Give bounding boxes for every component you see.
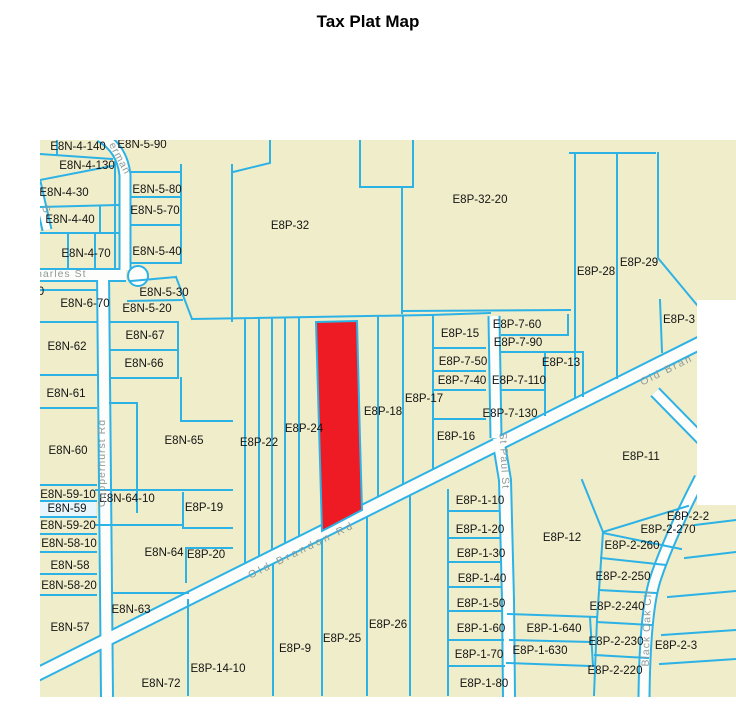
parcel-label: E8N-58 [51, 560, 90, 572]
plat-map: E8N-4-140E8N-5-90E8N-4-130E8N-4-30E8N-5-… [0, 0, 736, 726]
parcel-label: E8N-5-80 [132, 184, 181, 196]
parcel-label: E8P-7-50 [439, 356, 488, 368]
tax-plat-map-page: Tax Plat Map [0, 0, 736, 726]
parcel-label: E8P-15 [441, 328, 479, 340]
parcel-label: E8N-58-10 [41, 538, 97, 550]
parcel-label: E8N-4-40 [45, 214, 94, 226]
parcel-label: E8P-32-20 [453, 194, 508, 206]
parcel-label: E8P-2-230 [589, 636, 644, 648]
parcel-label: E8N-63 [112, 604, 151, 616]
parcel-label: E8P-2-250 [596, 571, 651, 583]
parcel-label: E8P-2-3 [655, 640, 697, 652]
parcel-label: E8P-2-220 [588, 665, 643, 677]
parcel-label: E8P-14-10 [191, 663, 246, 675]
parcel-label: E8P-17 [405, 393, 443, 405]
parcel-label: E8N-58-20 [41, 580, 97, 592]
parcel-label: E8N-4-70 [61, 248, 110, 260]
parcel-label: E8P-1-80 [460, 678, 509, 690]
parcel-label: E8N-5-30 [139, 287, 188, 299]
parcel-label: E8P-7-110 [492, 375, 546, 387]
parcel-label: E8P-24 [285, 423, 324, 435]
parcel-label: E8P-32 [271, 220, 309, 232]
parcel-label: E8N-59 [48, 503, 87, 515]
parcel-label: E8P-2-240 [590, 601, 645, 613]
parcel-label: E8N-5-40 [132, 246, 181, 258]
parcel-label: E8P-18 [364, 406, 402, 418]
parcel-label: E8P-20 [187, 549, 225, 561]
parcel-label: E8N-5-20 [122, 303, 171, 315]
parcel-label: E8P-1-30 [457, 548, 506, 560]
parcel-label: E8P-2-270 [641, 524, 696, 536]
parcel-label: E8P-12 [543, 532, 581, 544]
parcel-label: E8P-3 [663, 314, 695, 326]
parcel-label: E8P-2-2 [667, 511, 709, 523]
parcel-label: E8N-4-140 [50, 141, 106, 153]
parcel-label: E8N-4-130 [59, 160, 115, 172]
parcel-label: E8N-5-90 [117, 139, 166, 151]
parcel-label: 0 [38, 286, 44, 298]
parcel-label: E8P-28 [577, 266, 615, 278]
parcel-label: E8N-65 [165, 435, 204, 447]
parcel-label: E8P-1-630 [513, 645, 568, 657]
parcel-label: E8N-59-10 [40, 489, 96, 501]
charles-st-culdesac [128, 266, 148, 286]
parcel-label: E8P-9 [279, 643, 311, 655]
parcel-label: E8P-1-640 [527, 623, 582, 635]
parcel-label: E8P-1-10 [456, 495, 505, 507]
parcel-label: E8P-11 [622, 451, 660, 463]
parcel-label: E8N-67 [126, 330, 165, 342]
parcel-label: E8P-19 [185, 502, 223, 514]
parcel-label: E8N-6-70 [60, 298, 109, 310]
parcel-label: E8P-1-50 [457, 598, 506, 610]
parcel-label: E8N-59-20 [40, 520, 96, 532]
parcel-label: E8N-61 [47, 388, 86, 400]
parcel-label: E8N-5-70 [130, 205, 179, 217]
parcel-label: E8P-13 [542, 357, 580, 369]
parcel-label: E8P-26 [369, 619, 407, 631]
parcel-label: E8P-7-60 [493, 319, 542, 331]
parcel-label: E8P-16 [437, 431, 475, 443]
road-label: Copperhurst Rd [96, 419, 108, 507]
parcel-label: E8N-57 [51, 622, 90, 634]
parcel-label: E8N-66 [125, 358, 164, 370]
parcel-label: E8P-2-260 [605, 540, 660, 552]
parcel-label: E8P-7-40 [438, 375, 487, 387]
parcel-label: E8P-22 [240, 437, 278, 449]
parcel-label: E8P-1-40 [458, 573, 507, 585]
parcel-label: E8N-4-30 [39, 187, 88, 199]
parcel-label: E8N-60 [49, 445, 88, 457]
parcel-label: E8P-7-90 [494, 337, 543, 349]
parcel-label: E8N-62 [48, 341, 87, 353]
parcel-label: E8P-29 [620, 257, 658, 269]
parcel-label: E8N-72 [142, 678, 181, 690]
parcel-label: E8P-7-130 [483, 408, 538, 420]
parcel-label: E8N-64 [145, 547, 185, 559]
road-label: Charles St [27, 268, 86, 280]
parcel-label: E8P-1-70 [455, 649, 504, 661]
parcel-label: E8P-25 [323, 633, 361, 645]
parcel-label: E8P-1-60 [457, 623, 506, 635]
parcel-label: E8P-1-20 [456, 524, 505, 536]
